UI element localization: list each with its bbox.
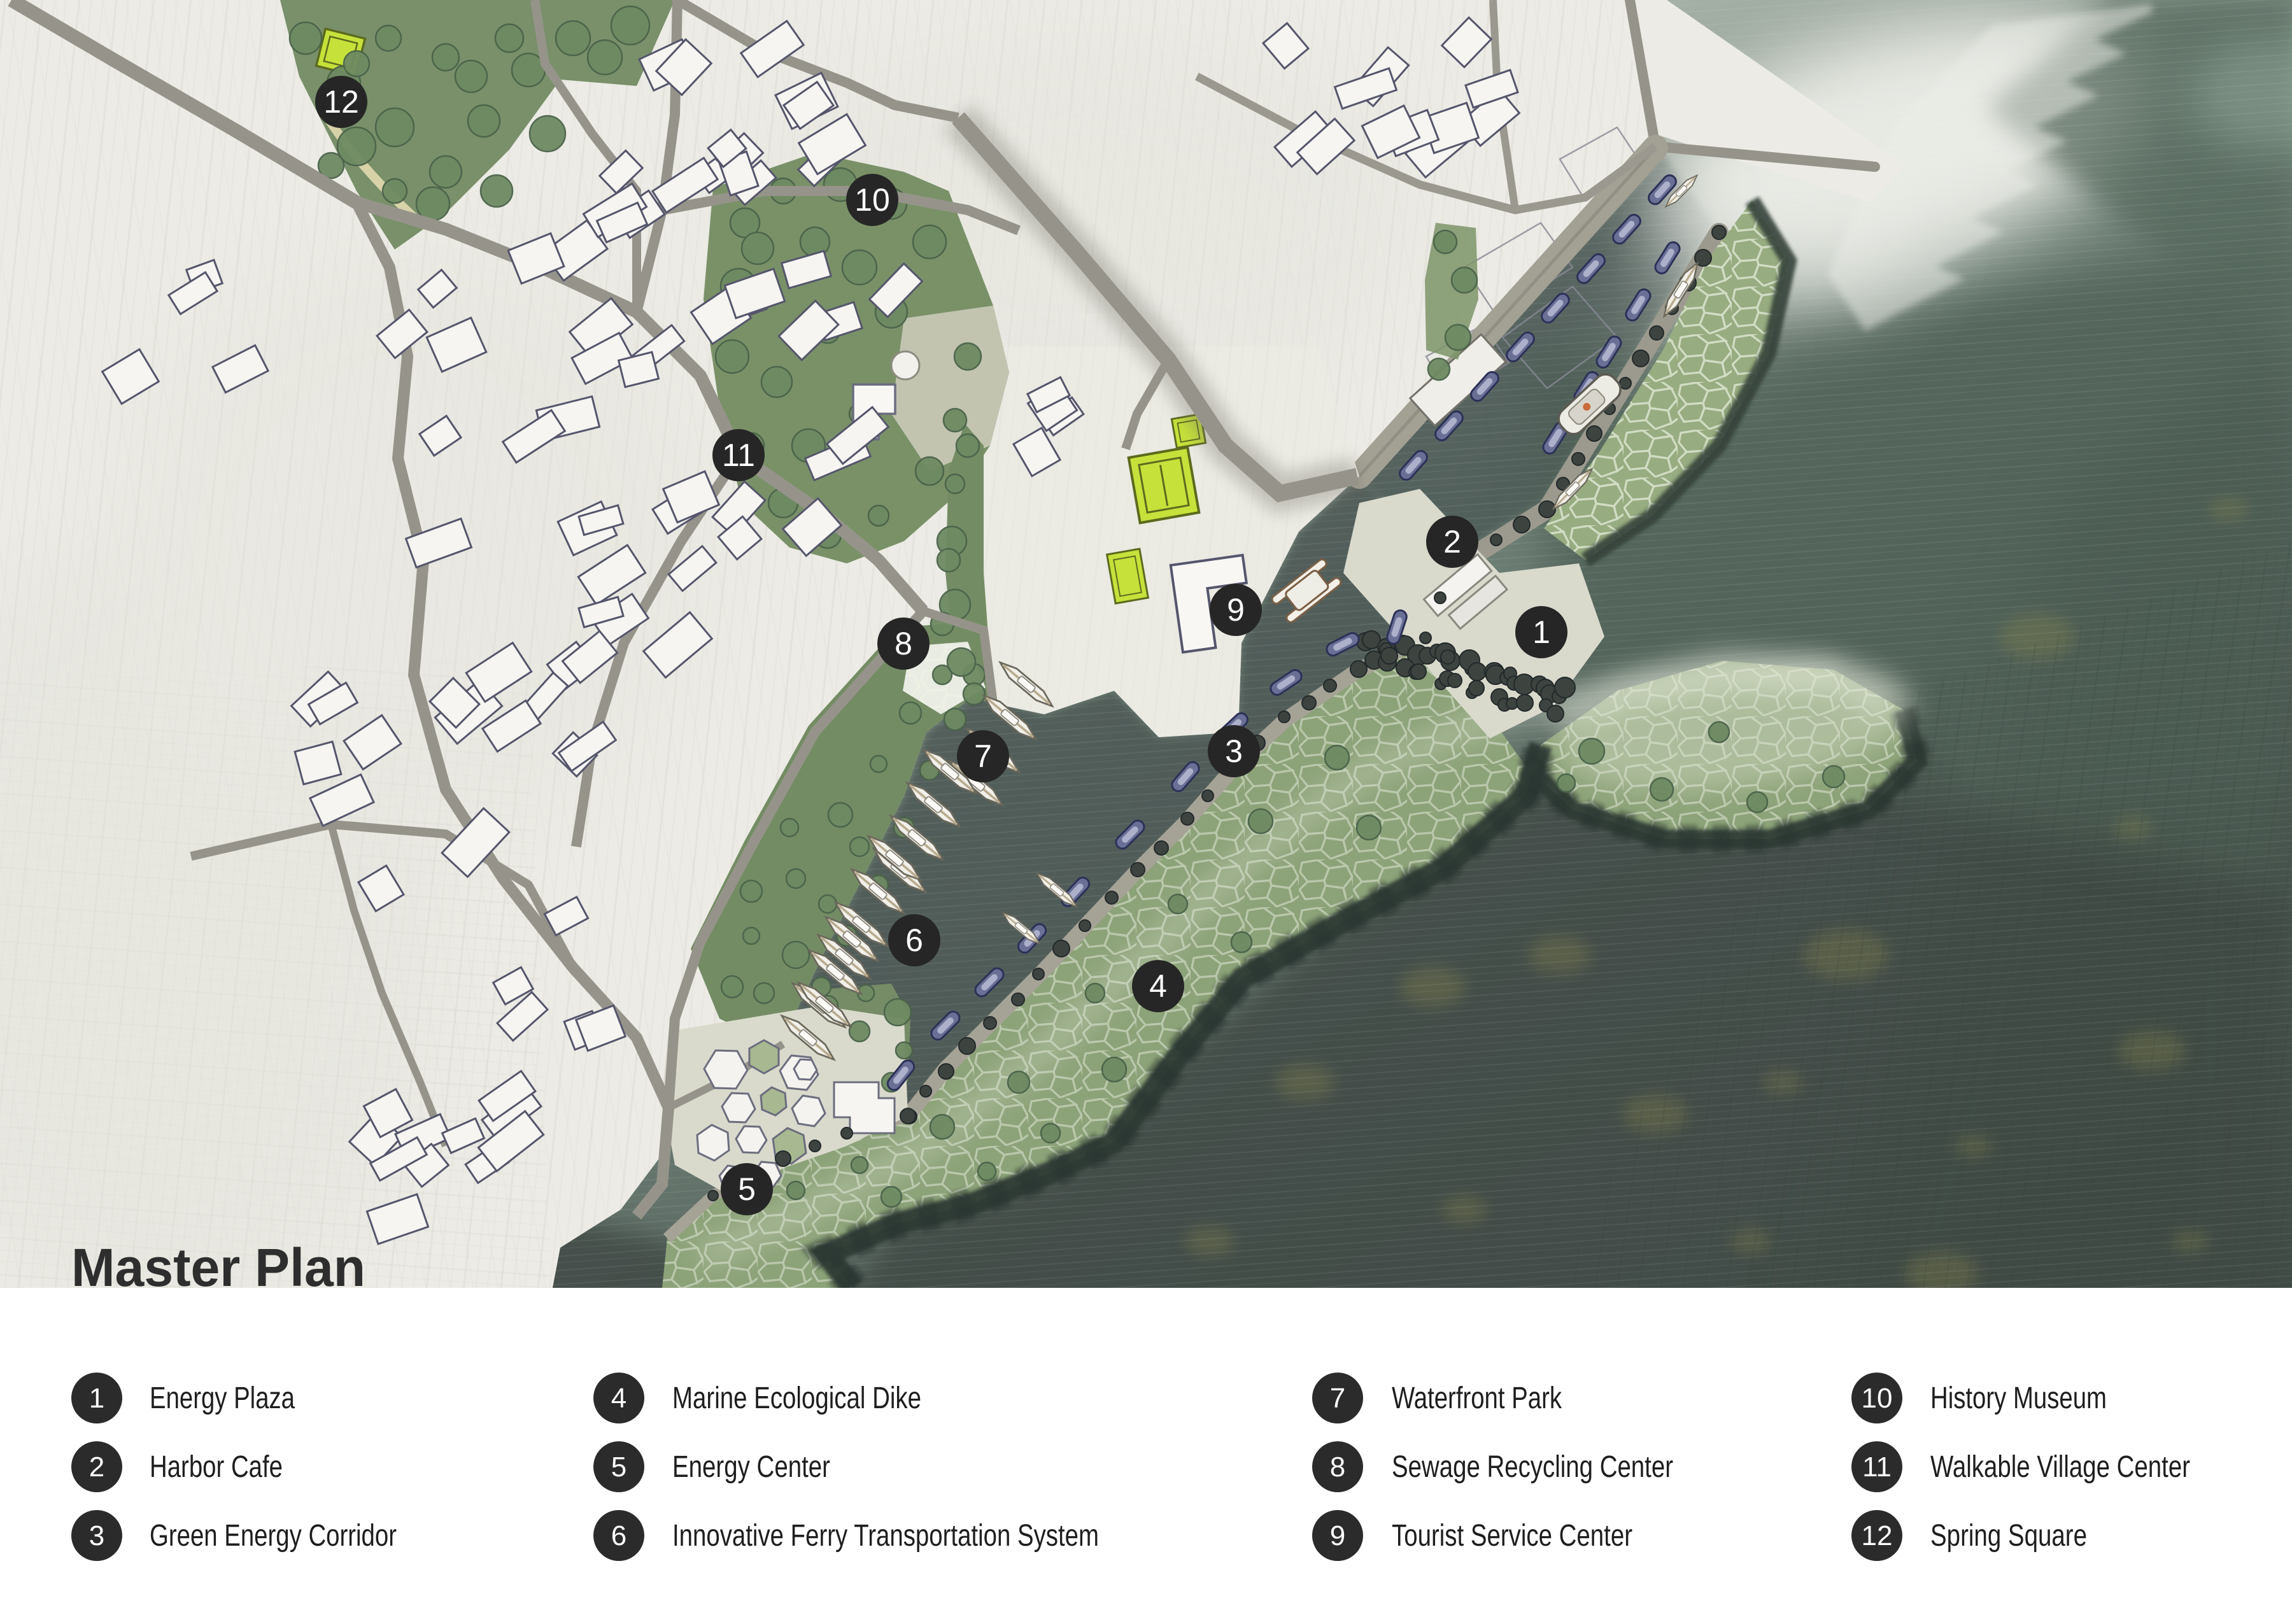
svg-text:6: 6 [905, 922, 923, 958]
svg-text:10: 10 [1862, 1383, 1893, 1414]
svg-text:Spring Square: Spring Square [1930, 1519, 2087, 1553]
svg-text:Energy Center: Energy Center [672, 1450, 830, 1484]
svg-text:11: 11 [1862, 1451, 1892, 1483]
svg-text:8: 8 [895, 626, 912, 661]
svg-text:Green Energy Corridor: Green Energy Corridor [150, 1519, 397, 1553]
svg-text:Master Plan: Master Plan [71, 1238, 365, 1297]
svg-text:1: 1 [1532, 614, 1550, 650]
svg-text:Tourist Service Center: Tourist Service Center [1392, 1519, 1632, 1553]
svg-text:Innovative Ferry Transportatio: Innovative Ferry Transportation System [672, 1519, 1099, 1553]
svg-text:6: 6 [611, 1520, 626, 1551]
svg-text:5: 5 [738, 1171, 756, 1207]
svg-text:4: 4 [611, 1383, 626, 1414]
svg-text:3: 3 [89, 1520, 104, 1551]
svg-text:12: 12 [323, 84, 359, 120]
svg-text:8: 8 [1330, 1451, 1345, 1483]
svg-text:Harbor Cafe: Harbor Cafe [150, 1450, 283, 1484]
svg-text:11: 11 [722, 437, 755, 473]
svg-text:Energy Plaza: Energy Plaza [150, 1381, 295, 1415]
svg-text:10: 10 [854, 182, 890, 218]
svg-text:Walkable Village Center: Walkable Village Center [1930, 1450, 2190, 1484]
svg-text:Marine Ecological Dike: Marine Ecological Dike [672, 1381, 921, 1415]
svg-text:12: 12 [1862, 1520, 1893, 1551]
svg-text:7: 7 [974, 738, 992, 774]
svg-text:History Museum: History Museum [1930, 1381, 2107, 1415]
svg-text:Waterfront Park: Waterfront Park [1392, 1381, 1562, 1415]
svg-text:9: 9 [1330, 1520, 1345, 1551]
svg-text:5: 5 [611, 1451, 626, 1483]
svg-text:7: 7 [1330, 1383, 1345, 1414]
svg-text:3: 3 [1225, 733, 1243, 769]
svg-text:4: 4 [1149, 968, 1167, 1004]
svg-text:Sewage Recycling Center: Sewage Recycling Center [1392, 1450, 1673, 1484]
svg-text:9: 9 [1227, 592, 1245, 628]
svg-text:2: 2 [1443, 524, 1461, 560]
svg-text:2: 2 [89, 1451, 104, 1483]
svg-text:1: 1 [89, 1383, 104, 1414]
